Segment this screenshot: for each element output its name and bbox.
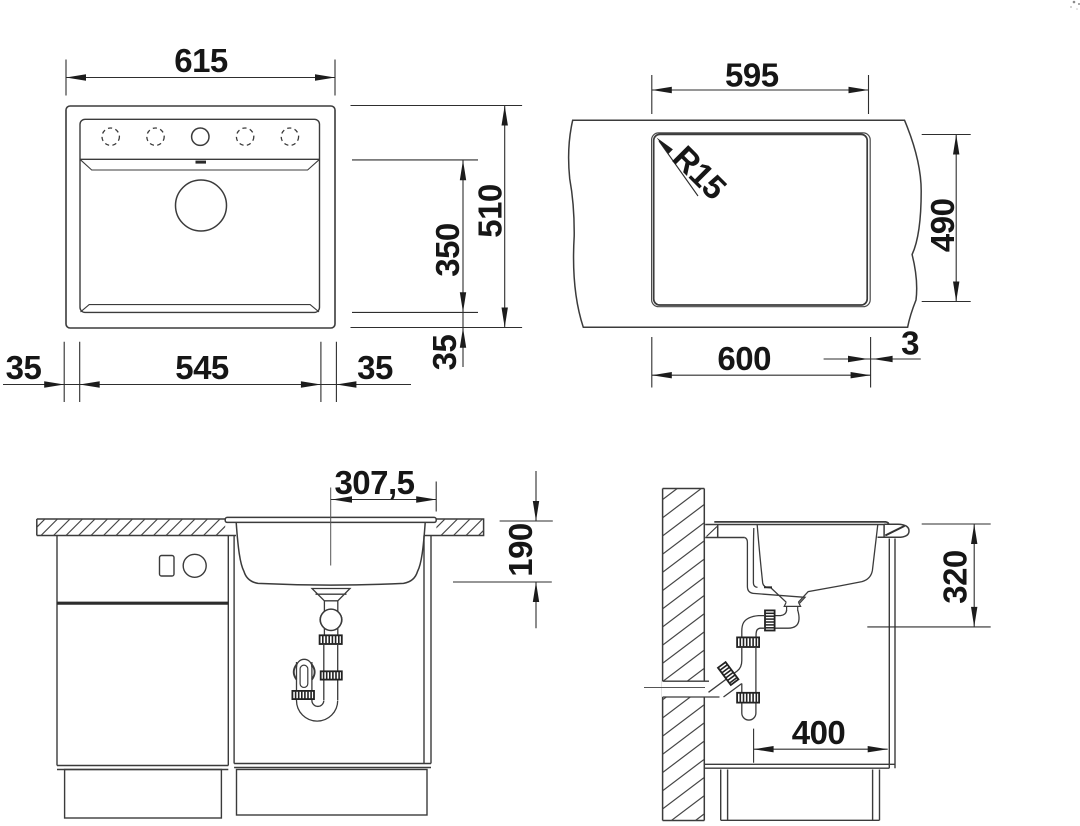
svg-text:600: 600: [717, 340, 771, 377]
svg-text:190: 190: [502, 523, 539, 577]
svg-text:510: 510: [472, 184, 509, 238]
svg-text:350: 350: [429, 223, 466, 277]
svg-text:615: 615: [174, 42, 228, 79]
svg-text:35: 35: [6, 349, 42, 386]
svg-text:35: 35: [357, 349, 393, 386]
svg-text:35: 35: [426, 335, 463, 371]
svg-text:320: 320: [937, 550, 974, 604]
svg-text:307,5: 307,5: [334, 464, 414, 501]
svg-text:3: 3: [901, 325, 919, 362]
svg-text:400: 400: [792, 714, 846, 751]
svg-text:595: 595: [725, 57, 779, 94]
svg-text:490: 490: [924, 199, 961, 253]
svg-text:545: 545: [175, 349, 229, 386]
